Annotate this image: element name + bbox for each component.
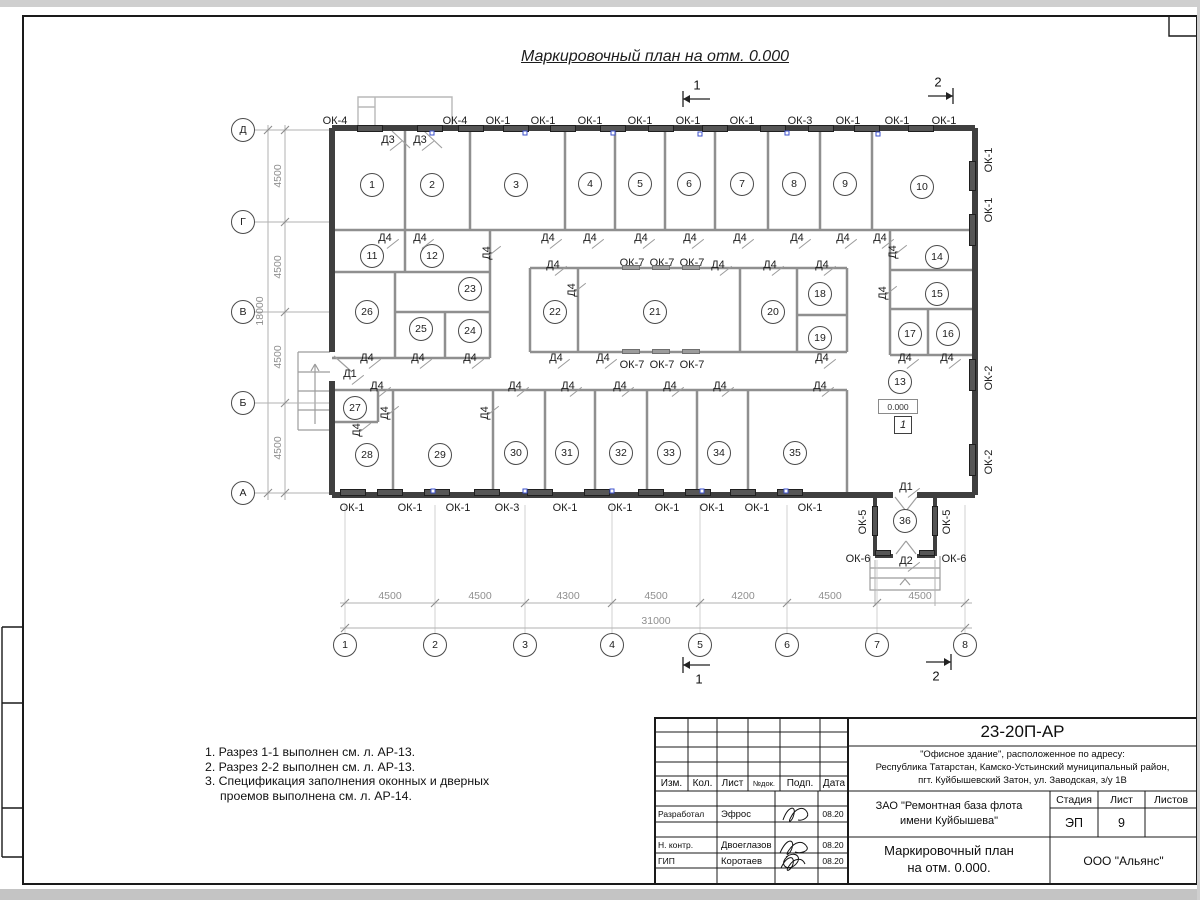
dimension-text: 4500 [908, 590, 931, 602]
axis-bubble: 1 [333, 633, 357, 657]
room-number: 21 [643, 300, 667, 324]
vent-mark [698, 132, 703, 137]
stage-label: Стадия [1050, 791, 1098, 808]
door-label: Д4 [411, 352, 425, 364]
door-label: Д3 [413, 134, 427, 146]
room-number: 24 [458, 319, 482, 343]
window-label: ОК-2 [983, 366, 995, 391]
sheet-title-line1: Маркировочный план [848, 842, 1050, 859]
window-label: ОК-6 [846, 553, 871, 565]
room-number: 5 [628, 172, 652, 196]
row1-name: Эфрос [721, 806, 773, 822]
window-label: ОК-5 [857, 510, 869, 535]
room-number: 11 [360, 244, 384, 268]
row3-date: 08.20 [818, 853, 848, 869]
section-mark-label: 2 [934, 75, 941, 90]
room-number: 9 [833, 172, 857, 196]
window-bar [760, 125, 786, 132]
stage-value: ЭП [1050, 808, 1098, 837]
vent-mark [431, 489, 436, 494]
room-number: 31 [555, 441, 579, 465]
vent-mark [876, 132, 881, 137]
dimension-text: 4500 [272, 164, 284, 187]
room-number: 14 [925, 245, 949, 269]
door-label: Д4 [813, 380, 827, 392]
door-label: Д4 [561, 380, 575, 392]
window-bar [638, 489, 664, 496]
door-label: Д4 [370, 380, 384, 392]
axis-bubble: 7 [865, 633, 889, 657]
client-line2: имени Куйбышева" [848, 813, 1050, 828]
window-bar [340, 489, 366, 496]
window-label: ОК-1 [446, 502, 471, 514]
window-bar [652, 265, 670, 270]
room-number: 26 [355, 300, 379, 324]
row2-date: 08.20 [818, 837, 848, 853]
dimension-text: 4300 [556, 590, 579, 602]
col-data: Дата [820, 776, 848, 791]
client-line1: ЗАО "Ремонтная база флота [848, 798, 1050, 813]
dimension-text: 4500 [272, 255, 284, 278]
window-label: ОК-3 [495, 502, 520, 514]
window-label: ОК-1 [885, 115, 910, 127]
room-number: 25 [409, 317, 433, 341]
door-label: Д4 [873, 232, 887, 244]
window-bar [932, 506, 938, 536]
room-number: 8 [782, 172, 806, 196]
window-bar [808, 125, 834, 132]
dimension-text: 4200 [731, 590, 754, 602]
note-line: 1. Разрез 1-1 выполнен см. л. АР-13. [205, 745, 545, 760]
window-bar [584, 489, 610, 496]
project-address-line3: пгт. Куйбышевский Затон, ул. Заводская, … [848, 774, 1197, 787]
door-label: Д4 [463, 352, 477, 364]
row2-role: Н. контр. [658, 837, 716, 853]
window-label: ОК-5 [941, 510, 953, 535]
row3-name: Коротаев [721, 853, 775, 869]
window-label: ОК-2 [983, 450, 995, 475]
window-label: ОК-6 [942, 553, 967, 565]
vent-mark [610, 489, 615, 494]
dimension-text: 4500 [644, 590, 667, 602]
notes: 1. Разрез 1-1 выполнен см. л. АР-13. 2. … [205, 745, 545, 803]
sheet-value: 9 [1098, 808, 1145, 837]
room-number: 22 [543, 300, 567, 324]
window-label: ОК-1 [398, 502, 423, 514]
window-bar [648, 125, 674, 132]
door-label: Д4 [378, 232, 392, 244]
window-bar [622, 349, 640, 354]
door-label: Д4 [508, 380, 522, 392]
section-mark-label: 1 [693, 78, 700, 93]
window-bar [550, 125, 576, 132]
window-bar [377, 489, 403, 496]
window-bar [875, 550, 891, 556]
door-label: Д2 [899, 555, 913, 567]
window-bar [702, 125, 728, 132]
axis-bubble: 3 [513, 633, 537, 657]
window-label: ОК-7 [650, 359, 675, 371]
col-kol: Кол. [688, 776, 717, 791]
vent-mark [785, 131, 790, 136]
row1-role: Разработал [658, 806, 716, 822]
vent-mark [430, 131, 435, 136]
col-izm: Изм. [655, 776, 688, 791]
window-bar [969, 444, 976, 476]
room-number: 30 [504, 441, 528, 465]
window-label: ОК-1 [655, 502, 680, 514]
window-bar [458, 125, 484, 132]
window-label: ОК-1 [798, 502, 823, 514]
room-number: 18 [808, 282, 832, 306]
door-label: Д4 [713, 380, 727, 392]
door-label: Д4 [549, 352, 563, 364]
sheet-title-line2: на отм. 0.000. [848, 859, 1050, 876]
row2-name: Двоеглазов [721, 837, 775, 853]
door-label: Д4 [790, 232, 804, 244]
window-bar [969, 161, 976, 191]
room-number: 19 [808, 326, 832, 350]
door-label: Д1 [343, 368, 357, 380]
room-number: 36 [893, 509, 917, 533]
axis-bubble: Г [231, 210, 255, 234]
window-label: ОК-1 [553, 502, 578, 514]
window-label: ОК-1 [608, 502, 633, 514]
elevation-mark: 0.000 [878, 399, 918, 414]
window-bar [682, 349, 700, 354]
vent-mark [700, 489, 705, 494]
room-number: 27 [343, 396, 367, 420]
window-bar [424, 489, 450, 496]
axis-bubble: 8 [953, 633, 977, 657]
room-number: 2 [420, 173, 444, 197]
window-label: ОК-7 [680, 359, 705, 371]
axis-bubble: 5 [688, 633, 712, 657]
axis-bubble: 2 [423, 633, 447, 657]
note-line: проемов выполнена см. л. АР-14. [205, 789, 545, 804]
window-bar [969, 214, 976, 246]
window-label: ОК-1 [730, 115, 755, 127]
company-name: ООО "Альянс" [1050, 837, 1197, 884]
window-label: ОК-4 [323, 115, 348, 127]
window-bar [872, 506, 878, 536]
axis-bubble: Б [231, 391, 255, 415]
window-bar [777, 489, 803, 496]
room-number: 4 [578, 172, 602, 196]
room-number: 34 [707, 441, 731, 465]
room-number: 33 [657, 441, 681, 465]
room-number: 23 [458, 277, 482, 301]
room-number: 32 [609, 441, 633, 465]
door-label: Д4 [815, 352, 829, 364]
room-number: 16 [936, 322, 960, 346]
room-number: 20 [761, 300, 785, 324]
window-bar [474, 489, 500, 496]
vent-mark [611, 131, 616, 136]
window-bar [652, 349, 670, 354]
floor-number-box: 1 [894, 416, 912, 434]
dimension-text: 4500 [378, 590, 401, 602]
dimension-text: 4500 [818, 590, 841, 602]
door-label: Д4 [940, 352, 954, 364]
window-bar [969, 359, 976, 391]
room-number: 29 [428, 443, 452, 467]
door-label: Д4 [733, 232, 747, 244]
window-label: ОК-1 [578, 115, 603, 127]
window-label: ОК-1 [340, 502, 365, 514]
door-label: Д4 [663, 380, 677, 392]
door-label: Д4 [360, 352, 374, 364]
dimension-text: 4500 [272, 345, 284, 368]
window-label: ОК-1 [983, 198, 995, 223]
window-label: ОК-1 [676, 115, 701, 127]
door-label: Д4 [683, 232, 697, 244]
section-mark-label: 1 [695, 672, 702, 687]
door-label: Д4 [413, 232, 427, 244]
col-ndok: №док. [748, 776, 780, 791]
axis-bubble: 6 [775, 633, 799, 657]
room-number: 35 [783, 441, 807, 465]
axis-bubble: 4 [600, 633, 624, 657]
door-label: Д1 [899, 481, 913, 493]
window-label: ОК-7 [620, 359, 645, 371]
door-label: Д4 [815, 259, 829, 271]
door-label: Д4 [634, 232, 648, 244]
room-number: 7 [730, 172, 754, 196]
room-number: 13 [888, 370, 912, 394]
room-number: 6 [677, 172, 701, 196]
door-label: Д4 [836, 232, 850, 244]
window-bar [908, 125, 934, 132]
window-label: ОК-1 [700, 502, 725, 514]
window-bar [527, 489, 553, 496]
row3-role: ГИП [658, 853, 716, 869]
note-line: 2. Разрез 2-2 выполнен см. л. АР-13. [205, 760, 545, 775]
door-label: Д4 [711, 259, 725, 271]
door-label: Д4 [613, 380, 627, 392]
door-label: Д4 [546, 259, 560, 271]
window-bar [357, 125, 383, 132]
window-label: ОК-1 [745, 502, 770, 514]
room-number: 10 [910, 175, 934, 199]
window-bar [730, 489, 756, 496]
sheet-label: Лист [1098, 791, 1145, 808]
room-number: 3 [504, 173, 528, 197]
axis-bubble: Д [231, 118, 255, 142]
vent-mark [523, 131, 528, 136]
window-label: ОК-1 [983, 148, 995, 173]
room-number: 17 [898, 322, 922, 346]
vent-mark [523, 489, 528, 494]
axis-bubble: А [231, 481, 255, 505]
window-bar [622, 265, 640, 270]
door-label: Д4 [583, 232, 597, 244]
window-bar [919, 550, 935, 556]
note-line: 3. Спецификация заполнения оконных и две… [205, 774, 545, 789]
door-label: Д4 [541, 232, 555, 244]
doc-number: 23-20П-АР [848, 720, 1197, 744]
col-podp: Подп. [780, 776, 820, 791]
door-label: Д4 [898, 352, 912, 364]
vent-mark [784, 489, 789, 494]
dimension-text: 4500 [272, 436, 284, 459]
project-address-line1: "Офисное здание", расположенное по адрес… [848, 748, 1197, 761]
room-number: 1 [360, 173, 384, 197]
axis-bubble: В [231, 300, 255, 324]
door-label: Д3 [381, 134, 395, 146]
section-mark-label: 2 [932, 669, 939, 684]
drawing-sheet: Маркировочный план на отм. 0.000 1234567… [0, 0, 1200, 900]
door-label: Д4 [763, 259, 777, 271]
room-number: 28 [355, 443, 379, 467]
col-list: Лист [717, 776, 748, 791]
room-number: 15 [925, 282, 949, 306]
door-label: Д4 [596, 352, 610, 364]
dimension-text: 18000 [254, 296, 266, 325]
project-address-line2: Республика Татарстан, Камско-Устьинский … [848, 761, 1197, 774]
window-bar [682, 265, 700, 270]
dimension-text: 4500 [468, 590, 491, 602]
sheets-label: Листов [1145, 791, 1197, 808]
dimension-text: 31000 [641, 615, 670, 627]
row1-date: 08.20 [818, 806, 848, 822]
window-label: ОК-1 [932, 115, 957, 127]
window-bar [685, 489, 711, 496]
